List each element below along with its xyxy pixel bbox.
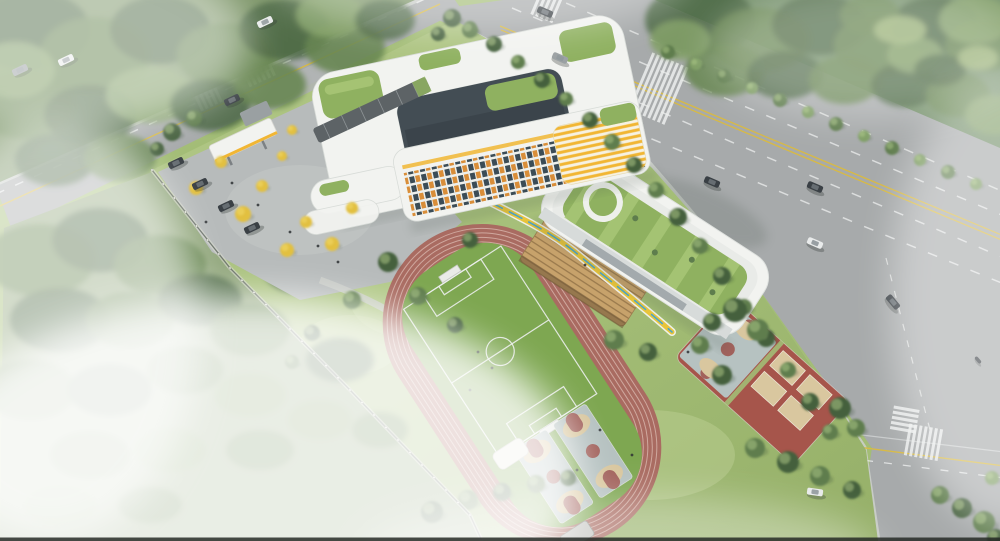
fence-post bbox=[195, 225, 197, 227]
tree-highlight bbox=[411, 289, 420, 298]
fence-post bbox=[184, 211, 186, 213]
person-dot bbox=[205, 221, 208, 224]
tree-highlight bbox=[782, 363, 790, 371]
person-dot bbox=[631, 454, 634, 457]
fence-post bbox=[241, 279, 243, 281]
tree-highlight bbox=[216, 157, 222, 163]
tree-highlight bbox=[749, 321, 760, 332]
tree-highlight bbox=[380, 254, 390, 264]
tree-highlight bbox=[536, 73, 544, 81]
tree-highlight bbox=[691, 59, 697, 65]
campus-render bbox=[0, 0, 1000, 541]
tree-highlight bbox=[288, 126, 293, 131]
tree-highlight bbox=[705, 315, 714, 324]
tree-highlight bbox=[715, 269, 724, 278]
tree-highlight bbox=[278, 152, 283, 157]
person-dot bbox=[337, 261, 340, 264]
person-dot bbox=[584, 264, 587, 267]
tree-highlight bbox=[560, 93, 567, 100]
forest-canopy bbox=[650, 20, 710, 60]
tree-highlight bbox=[747, 440, 757, 450]
tree-highlight bbox=[584, 113, 592, 121]
tree-highlight bbox=[488, 37, 496, 45]
tree-highlight bbox=[151, 143, 158, 150]
tree-highlight bbox=[237, 207, 245, 215]
person-dot bbox=[687, 351, 690, 354]
tree-highlight bbox=[830, 118, 837, 125]
tree-highlight bbox=[812, 468, 822, 478]
tree-highlight bbox=[845, 483, 854, 492]
bottom-border bbox=[0, 538, 1000, 541]
tree-highlight bbox=[281, 244, 288, 251]
tree-highlight bbox=[859, 131, 865, 137]
tree-highlight bbox=[188, 111, 196, 119]
tree-highlight bbox=[165, 125, 174, 134]
tree-highlight bbox=[725, 300, 737, 312]
tree-highlight bbox=[257, 181, 263, 187]
tree-highlight bbox=[886, 142, 893, 149]
tree-highlight bbox=[345, 293, 354, 302]
tree-highlight bbox=[831, 399, 842, 410]
fence-post bbox=[218, 253, 220, 255]
forest-canopy bbox=[234, 61, 306, 109]
tree-highlight bbox=[714, 367, 724, 377]
tree-highlight bbox=[693, 338, 702, 347]
tree-highlight bbox=[849, 421, 858, 430]
tree-highlight bbox=[933, 488, 942, 497]
tree-highlight bbox=[803, 395, 812, 404]
fence-post bbox=[229, 267, 231, 269]
fence-post bbox=[253, 291, 255, 293]
fence-post bbox=[151, 169, 153, 171]
tree-highlight bbox=[694, 239, 702, 247]
fence-post bbox=[173, 197, 175, 199]
tree-highlight bbox=[606, 135, 614, 143]
tree-highlight bbox=[512, 56, 519, 63]
fence-post bbox=[207, 239, 209, 241]
tree-highlight bbox=[662, 46, 669, 53]
tree-highlight bbox=[606, 332, 616, 342]
person-dot bbox=[257, 204, 260, 207]
tree-highlight bbox=[347, 203, 353, 209]
person-dot bbox=[289, 231, 292, 234]
aerial-render-canvas bbox=[0, 0, 1000, 541]
tree-highlight bbox=[779, 453, 790, 464]
person-dot bbox=[317, 245, 320, 248]
tree-highlight bbox=[449, 318, 457, 326]
tree-highlight bbox=[650, 183, 658, 191]
person-dot bbox=[231, 182, 234, 185]
tree-highlight bbox=[671, 210, 680, 219]
fence-post bbox=[162, 183, 164, 185]
tree-highlight bbox=[464, 233, 472, 241]
tree-highlight bbox=[641, 345, 650, 354]
person-dot bbox=[599, 429, 602, 432]
tree-highlight bbox=[301, 217, 307, 223]
tree-highlight bbox=[628, 158, 636, 166]
tree-highlight bbox=[326, 238, 333, 245]
tree-highlight bbox=[824, 425, 832, 433]
